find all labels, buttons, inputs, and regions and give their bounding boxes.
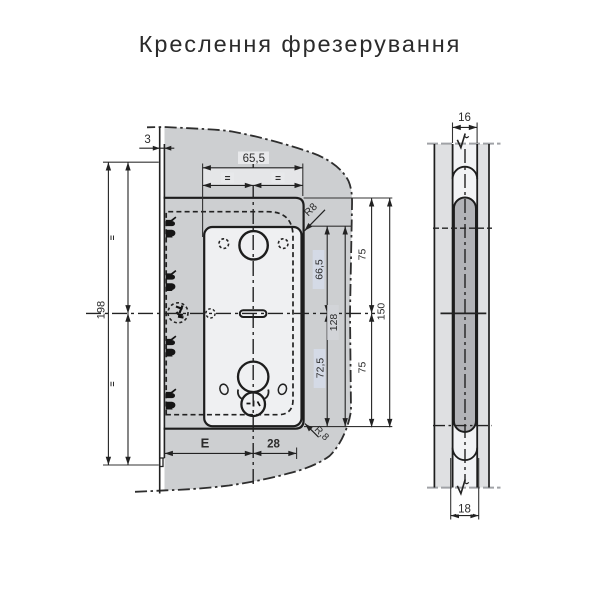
svg-text:75: 75 bbox=[356, 249, 368, 261]
svg-text:65,5: 65,5 bbox=[243, 153, 265, 165]
svg-text:=: = bbox=[108, 235, 118, 240]
svg-text:150: 150 bbox=[375, 303, 387, 321]
svg-text:198: 198 bbox=[96, 301, 108, 319]
svg-text:28: 28 bbox=[267, 439, 280, 451]
svg-text:=: = bbox=[108, 381, 118, 386]
svg-text:66,5: 66,5 bbox=[313, 259, 325, 280]
svg-text:=: = bbox=[275, 174, 281, 185]
svg-text:=: = bbox=[225, 174, 231, 185]
svg-text:E: E bbox=[201, 436, 210, 451]
svg-text:3: 3 bbox=[144, 134, 150, 146]
svg-text:Креслення фрезерування: Креслення фрезерування bbox=[139, 31, 461, 57]
svg-text:18: 18 bbox=[458, 504, 471, 516]
svg-text:16: 16 bbox=[458, 112, 471, 124]
svg-text:75: 75 bbox=[356, 362, 368, 374]
svg-text:128: 128 bbox=[328, 314, 340, 332]
svg-text:72,5: 72,5 bbox=[314, 358, 326, 379]
